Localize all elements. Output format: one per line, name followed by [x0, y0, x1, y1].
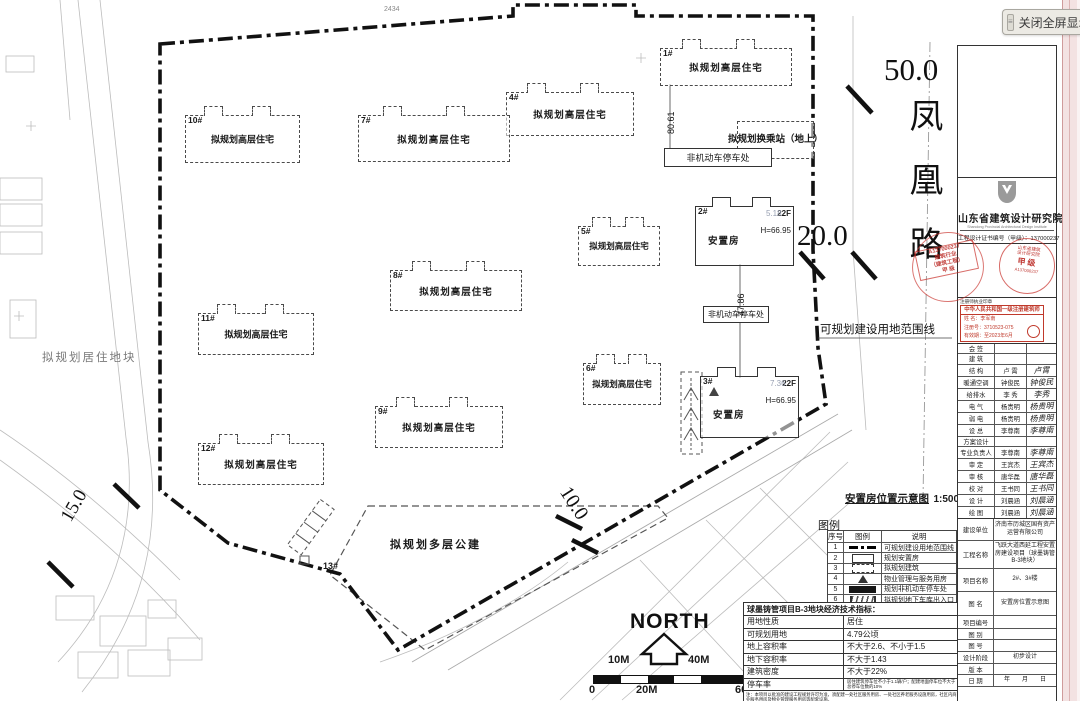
signature-role: 审 核: [958, 471, 995, 482]
econ-row-label: 建筑密度: [744, 666, 844, 678]
signature-printed-name: [995, 437, 1027, 446]
dim-7-36: 7.36: [770, 379, 786, 388]
building-number: 4#: [508, 93, 519, 102]
signature-printed-name: 卢 霄: [995, 365, 1027, 376]
signature-role: 设 计: [958, 495, 995, 506]
north-arrow-icon: [638, 632, 690, 666]
signature-role: 审 定: [958, 459, 995, 470]
signature-row: 绘 图 刘晨涵 刘晨涵: [958, 507, 1056, 518]
legend-row: 2 规划安置房: [828, 553, 956, 563]
cadastral-lines: [0, 0, 940, 700]
econ-title: 球墨铸管项目B-3地块经济技术指标：: [744, 603, 959, 616]
dim-2434: 2434: [384, 6, 400, 13]
boundary-label: 可规划建设用地范围线: [820, 321, 935, 337]
info-row-label: 图 别: [958, 629, 994, 639]
signature-handwritten: 杨贵明: [1027, 400, 1057, 413]
transfer-station-label: 拟规划换乘站（地上）: [728, 131, 823, 145]
signature-printed-name: 刘晨涵: [995, 507, 1027, 518]
econ-row: 用地性质 居住: [744, 616, 959, 629]
building-label: 拟规划高层住宅: [391, 284, 521, 298]
signature-printed-name: 唐华磊: [995, 471, 1027, 482]
signature-printed-name: 李尊南: [995, 425, 1027, 436]
info-row: 项目编号: [958, 616, 1056, 629]
signature-row: 审 定 王宾杰 王宾杰: [958, 459, 1056, 471]
legend-symbol-icon: [852, 554, 874, 563]
signature-printed-name: 王书同: [995, 483, 1027, 494]
legend-header-no: 序号: [828, 531, 844, 543]
info-row-label: 设计阶段: [958, 652, 994, 663]
signature-row: 弱 电 杨贵明 杨贵明: [958, 413, 1056, 425]
signature-role: 校 对: [958, 483, 995, 494]
legend-row-no: 3: [828, 564, 844, 574]
info-row-value: [994, 640, 1056, 651]
signature-row: 暖通空调 钟俊民 钟俊民: [958, 377, 1056, 389]
econ-row-value: 不大于1.43: [844, 654, 959, 666]
building-number: 6#: [585, 364, 596, 373]
building-label: 拟规划高层住宅: [199, 328, 313, 341]
info-row-label: 建设单位: [958, 519, 994, 540]
info-table: 建设单位 济南市历城区国有资产运营有限公司 工程名称 飞跃大道西延工程安置房建设…: [958, 519, 1056, 701]
info-row-label: 工程名称: [958, 541, 994, 568]
signature-handwritten: 刘晨涵: [1027, 506, 1057, 519]
building-label: 拟规划高层住宅: [186, 133, 299, 146]
economic-indicators-table: 球墨铸管项目B-3地块经济技术指标： 用地性质 居住 可规划用地 4.79公顷 …: [743, 602, 960, 701]
road-width-dim-50: 50.0: [884, 52, 938, 88]
building-12: 12# 拟规划高层住宅: [198, 443, 324, 485]
legend-row-desc: 规划非机动车停车处: [882, 585, 956, 595]
info-row: 图 名 安置房位置示意图: [958, 592, 1056, 616]
econ-row-label: 地上容积率: [744, 641, 844, 653]
signature-role: 电 气: [958, 401, 995, 412]
scale-label-40m: 40M: [688, 654, 709, 666]
signature-printed-name: 李 秀: [995, 389, 1027, 400]
signature-printed-name: [995, 344, 1027, 353]
stamp-text: A137000237 建筑行业 （建筑工程） 甲 级: [914, 239, 979, 281]
building-7: 7# 拟规划高层住宅: [358, 115, 510, 162]
signature-role: 弱 电: [958, 413, 995, 424]
signature-handwritten: 李秀: [1027, 388, 1057, 401]
building-label: 拟规划高层住宅: [584, 378, 660, 390]
info-row: 项目名称 2#、3#楼: [958, 569, 1056, 592]
site-plan-drawing: [0, 0, 955, 701]
econ-row-label: 可规划用地: [744, 629, 844, 641]
building-13-label: 拟规划多层公建: [390, 536, 481, 552]
signature-row: 审 核 唐华磊 唐华磊: [958, 471, 1056, 483]
econ-row-label: 用地性质: [744, 616, 844, 628]
building-label: 安置房: [708, 233, 740, 247]
scale-label-20m: 20M: [636, 684, 657, 696]
signature-role: 暖通空调: [958, 377, 995, 388]
legend-header: 序号 图例 说明: [828, 531, 956, 543]
bike-parking-label-top: 非机动车停车处: [664, 148, 772, 167]
econ-row-value: 居住: [844, 616, 959, 628]
property-mgmt-triangle-icon: [709, 387, 719, 396]
info-row-value: 飞跃大道西延工程安置房建设项目（球墨铸管B-3地块）: [994, 541, 1056, 568]
signature-role: 给排水: [958, 389, 995, 400]
legend-row: 4 物业管理与服务用房: [828, 574, 956, 584]
legend-row-desc: 拟规划建筑: [882, 564, 956, 574]
close-fullscreen-label: 关闭全屏显示: [1019, 14, 1080, 31]
signature-handwritten: [1027, 354, 1056, 365]
institute-logo-icon: [996, 180, 1018, 204]
info-row-value: 济南市历城区国有资产运营有限公司: [994, 519, 1056, 540]
building-label: 拟规划高层住宅: [359, 132, 509, 146]
info-row-label: 项目编号: [958, 616, 994, 628]
signature-printed-name: 王宾杰: [995, 459, 1027, 470]
building-height: H=66.95: [761, 226, 791, 235]
building-8: 8# 拟规划高层住宅: [390, 270, 522, 311]
info-row: 图 别: [958, 629, 1056, 640]
info-row-label: 项目名称: [958, 569, 994, 591]
signature-table: 会 签 建 筑 结 构 卢 霄 卢霄 暖通空调: [958, 344, 1056, 519]
signature-printed-name: 李尊南: [995, 447, 1027, 458]
building-number: 5#: [580, 227, 591, 236]
info-row: 版 本: [958, 664, 1056, 675]
info-row-value: [994, 664, 1056, 674]
scale-label-10m: 10M: [608, 654, 629, 666]
legend-row-no: 5: [828, 585, 844, 595]
legend-row: 1 可规划建设用地范围线: [828, 543, 956, 553]
info-row-label: 图 号: [958, 640, 994, 651]
legend-row-desc: 规划安置房: [882, 553, 956, 563]
info-row-label: 日 期: [958, 675, 994, 686]
legend-header-symbol: 图例: [844, 531, 882, 543]
signature-role: 设 总: [958, 425, 995, 436]
info-row-value: 2#、3#楼: [994, 569, 1056, 591]
title-block-empty-panel: [958, 46, 1056, 178]
reg-seal-icon: [1027, 325, 1040, 338]
building-number: 9#: [377, 407, 388, 416]
legend-row-no: 1: [828, 543, 844, 553]
legend-row: 5 规划非机动车停车处: [828, 585, 956, 595]
institute-name: 山东省建筑设计研究院: [958, 210, 1056, 225]
scale-bar: [593, 675, 755, 684]
signature-printed-name: 钟俊民: [995, 377, 1027, 388]
building-number: 8#: [392, 271, 403, 280]
building-number: 1#: [662, 49, 673, 58]
registration-label: 注册师执业印章: [958, 298, 1056, 305]
dim-80-61: 80.61: [666, 111, 676, 134]
signature-role: 结 构: [958, 365, 995, 376]
signature-handwritten: [1027, 436, 1056, 447]
building-number: 3#: [702, 377, 713, 386]
info-row-value: [994, 629, 1056, 639]
building-label: 拟规划高层住宅: [661, 60, 791, 74]
legend-symbol-icon: [858, 575, 868, 583]
econ-row: 停车率 居住建筑停车位不小于1.1辆/户；配建地面停车位不大于总停车位数的10%: [744, 679, 959, 692]
signature-row: 设 总 李尊南 李尊南: [958, 425, 1056, 437]
legend-row-desc: 可规划建设用地范围线: [882, 543, 956, 553]
info-row-value: 年 月 日: [994, 675, 1056, 686]
signature-row: 校 对 王书同 王书同: [958, 483, 1056, 495]
legend-rows: 1 可规划建设用地范围线 2 规划安置房 3 拟规划建筑 4: [828, 543, 956, 605]
econ-row: 可规划用地 4.79公顷: [744, 629, 959, 642]
signature-handwritten: 钟俊民: [1027, 376, 1057, 389]
econ-row: 建筑密度 不大于22%: [744, 666, 959, 679]
diagram-title: 安置房位置示意图: [845, 493, 929, 505]
building-10: 10# 拟规划高层住宅: [185, 115, 300, 163]
title-block: 山东省建筑设计研究院 Shandong Provincial Architect…: [957, 45, 1057, 701]
legend-symbol-icon: [849, 586, 876, 593]
info-row: 建设单位 济南市历城区国有资产运营有限公司: [958, 519, 1056, 541]
building-number: 2#: [697, 207, 708, 216]
signature-role: 建 筑: [958, 354, 995, 363]
legend-row-no: 2: [828, 553, 844, 563]
signature-handwritten: 王宾杰: [1027, 458, 1057, 471]
registration-zone: 注册师执业印章 中华人民共和国一级注册建筑师 姓 名：李军南 注册号：37105…: [958, 298, 1056, 344]
signature-row: 建 筑: [958, 354, 1056, 364]
info-row-value: 初步设计: [994, 652, 1056, 663]
signature-printed-name: 刘晨涵: [995, 495, 1027, 506]
signature-printed-name: [995, 354, 1027, 363]
econ-row-value: 不大于22%: [844, 666, 959, 678]
building-label: 拟规划高层住宅: [199, 457, 323, 471]
legend-header-desc: 说明: [882, 531, 956, 543]
building-number: 12#: [200, 444, 216, 453]
building-height: H=66.95: [766, 396, 796, 405]
building-label: 安置房: [713, 407, 745, 421]
building-11: 11# 拟规划高层住宅: [198, 313, 314, 355]
signature-handwritten: 李尊南: [1027, 424, 1057, 437]
legend-symbol-icon: [852, 564, 874, 573]
signature-row: 结 构 卢 霄 卢霄: [958, 365, 1056, 377]
signature-row: 给排水 李 秀 李秀: [958, 389, 1056, 401]
building-label: 拟规划高层住宅: [376, 420, 502, 434]
info-row-label: 版 本: [958, 664, 994, 674]
signature-role: 专业负责人: [958, 447, 995, 458]
registered-architect-stamp: 中华人民共和国一级注册建筑师 姓 名：李军南 注册号：3710523-075 有…: [960, 305, 1044, 342]
dim-5-18: 5.18: [766, 209, 782, 218]
info-row: 日 期 年 月 日: [958, 675, 1056, 687]
signature-handwritten: 李尊南: [1027, 446, 1057, 459]
signature-handwritten: 刘晨涵: [1027, 494, 1057, 507]
signature-handwritten: 卢霄: [1027, 364, 1057, 377]
info-row: 设计阶段 初步设计: [958, 652, 1056, 664]
scale-label-0: 0: [589, 684, 595, 696]
legend-symbol-cell: [844, 574, 882, 584]
title-block-header: 山东省建筑设计研究院 Shandong Provincial Architect…: [958, 178, 1056, 244]
building-1: 1# 拟规划高层住宅: [660, 48, 792, 86]
diagram-scale: 1:500: [933, 494, 959, 505]
econ-row: 地上容积率 不大于2.6、不小于1.5: [744, 641, 959, 654]
signature-role: 方案设计: [958, 437, 995, 446]
info-row-value: [994, 616, 1056, 628]
legend-symbol-cell: [844, 543, 882, 553]
road-dim-20: 20.0: [797, 220, 848, 253]
signature-role: 会 签: [958, 344, 995, 353]
building-number: 11#: [200, 314, 216, 323]
econ-rows: 用地性质 居住 可规划用地 4.79公顷 地上容积率 不大于2.6、不小于1.5…: [744, 616, 959, 691]
legend-symbol-cell: [844, 553, 882, 563]
reg-name: 姓 名：李军南: [961, 315, 1043, 324]
info-row-label: 图 名: [958, 592, 994, 615]
legend-row-desc: 物业管理与服务用房: [882, 574, 956, 584]
econ-row-label: 地下容积率: [744, 654, 844, 666]
signature-handwritten: 王书同: [1027, 482, 1057, 495]
building-5: 5# 拟规划高层住宅: [578, 226, 660, 266]
north-label: NORTH: [630, 610, 710, 634]
signature-row: 电 气 杨贵明 杨贵明: [958, 401, 1056, 413]
legend-row: 3 拟规划建筑: [828, 564, 956, 574]
signature-handwritten: 杨贵明: [1027, 412, 1057, 425]
dim-47-86: 47.86: [736, 293, 746, 316]
signature-printed-name: 杨贵明: [995, 413, 1027, 424]
econ-row: 地下容积率 不大于1.43: [744, 654, 959, 667]
building-label: 拟规划高层住宅: [507, 107, 633, 121]
close-fullscreen-button[interactable]: ≡ 关闭全屏显示: [1002, 9, 1080, 35]
signature-role: 绘 图: [958, 507, 995, 518]
building-6: 6# 拟规划高层住宅: [583, 363, 661, 405]
info-row: 工程名称 飞跃大道西延工程安置房建设项目（球墨铸管B-3地块）: [958, 541, 1056, 569]
signature-row: 专业负责人 李尊南 李尊南: [958, 447, 1056, 459]
econ-row-label: 停车率: [744, 679, 844, 691]
econ-row-value: 居住建筑停车位不小于1.1辆/户；配建地面停车位不大于总停车位数的10%: [844, 679, 959, 691]
diagram-title-block: 安置房位置示意图 1:500: [845, 489, 959, 507]
info-row-value: 安置房位置示意图: [994, 592, 1056, 615]
legend-symbol-icon: [849, 546, 876, 549]
econ-row-value: 不大于2.6、不小于1.5: [844, 641, 959, 653]
building-number: 10#: [187, 116, 203, 125]
signature-row: 会 签: [958, 344, 1056, 354]
info-row: 图 号: [958, 640, 1056, 652]
reg-title: 中华人民共和国一级注册建筑师: [961, 306, 1043, 315]
site-plan-viewer: 1# 拟规划高层住宅 2# 22F H=66.95 安置房 3# 22F H=6…: [0, 0, 1080, 701]
building-9: 9# 拟规划高层住宅: [375, 406, 503, 448]
legend-table: 序号 图例 说明 1 可规划建设用地范围线 2 规划安置房 3: [827, 530, 957, 606]
signature-row: 设 计 刘晨涵 刘晨涵: [958, 495, 1056, 507]
building-13-number: 13#: [323, 561, 338, 571]
grip-icon: ≡: [1007, 14, 1014, 31]
signature-handwritten: 唐华磊: [1027, 470, 1057, 483]
building-4: 4# 拟规划高层住宅: [506, 92, 634, 136]
residential-plot-label: 拟规划居住地块: [42, 349, 137, 365]
building-number: 7#: [360, 116, 371, 125]
legend-symbol-cell: [844, 585, 882, 595]
econ-row-value: 4.79公顷: [844, 629, 959, 641]
signature-row: 方案设计: [958, 437, 1056, 447]
signature-printed-name: 杨贵明: [995, 401, 1027, 412]
building-label: 拟规划高层住宅: [579, 240, 659, 252]
legend-symbol-cell: [844, 564, 882, 574]
legend-row-no: 4: [828, 574, 844, 584]
page-edge-band: [1062, 0, 1078, 701]
econ-note: 注：本项目以批准的建设工程规划许可为准，须配建一处社区服务用房、一处社区养老服务…: [744, 691, 959, 701]
